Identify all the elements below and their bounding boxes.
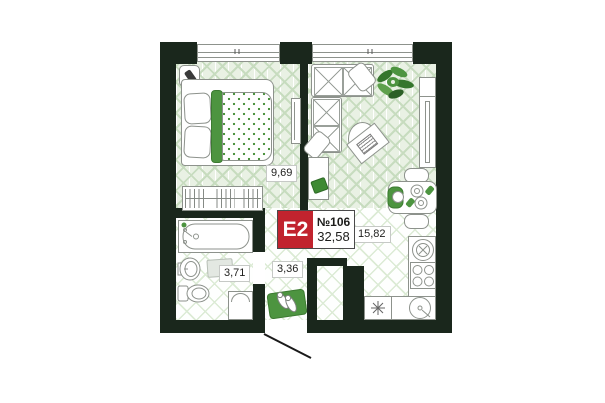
kitchen-sink-icon: [410, 298, 431, 319]
unit-total-area: 32,58: [317, 229, 350, 244]
plant-icon: [375, 65, 414, 101]
unit-number: №106: [317, 215, 350, 229]
soap-icon: [182, 223, 187, 228]
unit-type-badge: E2: [278, 211, 313, 248]
bathtub-inner-icon: [183, 224, 249, 249]
hallway-area-label: 3,36: [272, 261, 303, 278]
plan-details: [0, 0, 605, 403]
unit-label: E2 №106 32,58: [277, 210, 355, 249]
vent-asterisk-icon: [371, 301, 385, 315]
bedroom-area-label: 9,69: [266, 165, 297, 182]
toilet-icon: [178, 285, 209, 302]
table-setting-icons: [388, 185, 435, 209]
floor-plan: 9,69 15,82 3,71 3,36 E2 №106 32,58: [0, 0, 605, 403]
oven-icon: [413, 240, 434, 261]
living-kitchen-area-label: 15,82: [353, 226, 391, 243]
entrance-door-swing: [264, 334, 311, 358]
bathroom-sink-icon: [178, 258, 200, 280]
slippers-icon: [275, 292, 298, 314]
bathroom-area-label: 3,71: [219, 265, 250, 282]
unit-info: №106 32,58: [313, 211, 354, 248]
stove-burners-icon: [413, 266, 434, 287]
